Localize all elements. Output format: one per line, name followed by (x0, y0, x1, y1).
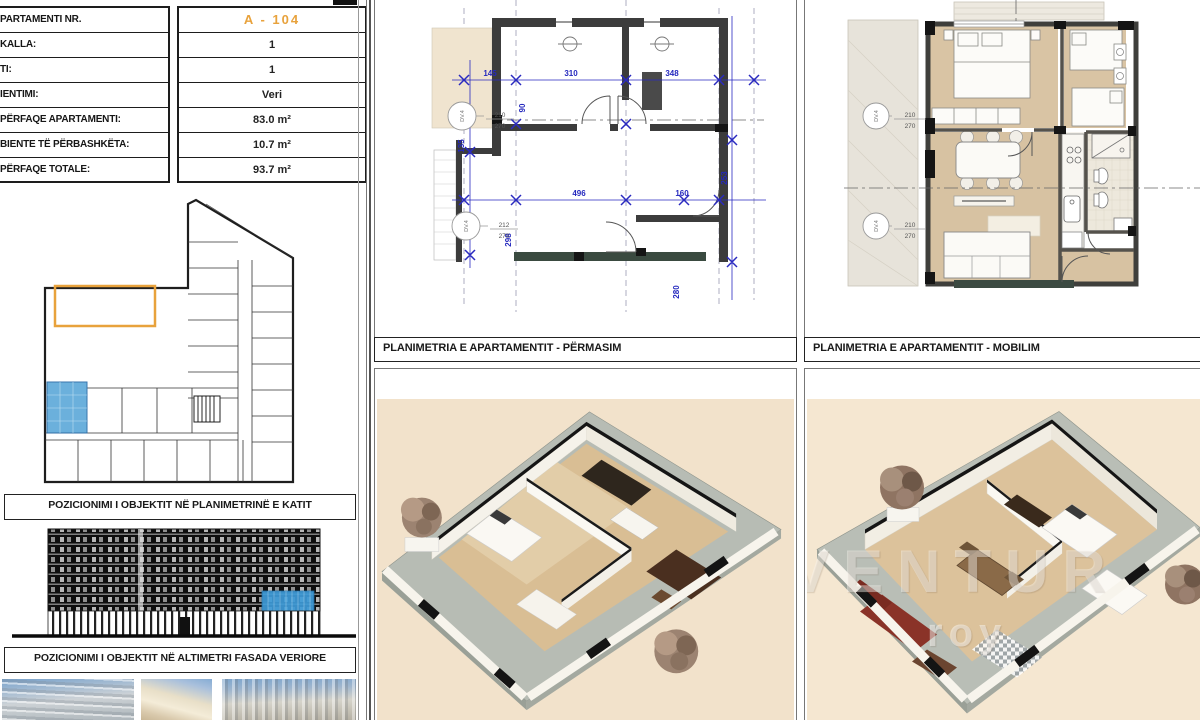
table-label: PARTAMENTI NR. (0, 8, 168, 33)
apartment-number: A - 104 (179, 8, 365, 33)
render-image-mid (377, 399, 794, 720)
building-photo-2 (141, 679, 212, 720)
door-tag-width: 212 (499, 222, 510, 229)
tree-2 (654, 629, 698, 673)
highlighted-unit-blue (47, 382, 87, 433)
dim-label: 310 (564, 69, 578, 78)
table-value: 10.7 m² (179, 133, 365, 158)
table-label: IENTIMI: (0, 83, 168, 108)
ceiling-symbols (558, 37, 674, 51)
door-tag-width: 210 (905, 222, 916, 229)
render-image-right: VENTUR roy (807, 399, 1200, 720)
dim-label: 160 (675, 189, 689, 198)
table-value: 1 (179, 33, 365, 58)
table-top-partial-cell (333, 0, 357, 5)
door-tag-width: 210 (905, 112, 916, 119)
plan-dimensions-title: PLANIMETRIA E APARTAMENTIT - PËRMASIM (375, 338, 796, 354)
dim-label: 253 (720, 171, 729, 185)
isometric-render-right (807, 399, 1200, 720)
tree-1 (401, 498, 442, 552)
frame-line (358, 0, 359, 720)
table-label: BIENTE TË PËRBASHKËTA: (0, 133, 168, 158)
key-plan-caption-text: POZICIONIMI I OBJEKTIT NË PLANIMETRINË E… (5, 495, 355, 511)
door-arcs (582, 96, 719, 252)
table-value: 93.7 m² (179, 158, 365, 183)
dim-label: 280 (672, 285, 681, 299)
dim-label: 135 (457, 139, 466, 153)
door-tag-height: 270 (905, 123, 916, 130)
info-table-values: A - 104 1 1 Veri 83.0 m² 10.7 m² 93.7 m² (177, 6, 367, 183)
isometric-render-mid (377, 399, 794, 720)
table-label: PËRFAQE APARTAMENTI: (0, 108, 168, 133)
stair-core (194, 396, 220, 422)
apartment-sheet: PARTAMENTI NR. KALLA: TI: IENTIMI: PËRFA… (0, 0, 1200, 720)
plan-dimensions-drawing: 145 310 348 496 160 90 135 298 253 280 D… (374, 0, 798, 336)
table-label: KALLA: (0, 33, 168, 58)
table-label: TI: (0, 58, 168, 83)
building-photo-1 (2, 679, 134, 720)
frame-line (366, 0, 367, 720)
plan-furnished-drawing: DV.4 210 270 DV.4 210 270 (804, 0, 1200, 336)
plan-furnished-header: PLANIMETRIA E APARTAMENTIT - MOBILIM (804, 337, 1200, 362)
door-tag-height: 270 (905, 233, 916, 240)
key-plan-caption: POZICIONIMI I OBJEKTIT NË PLANIMETRINË E… (4, 494, 356, 520)
facade-accent-strip (138, 529, 143, 611)
frame-line (369, 0, 371, 720)
table-label: PËRFAQE TOTALE: (0, 158, 168, 183)
elevation-caption-text: POZICIONIMI I OBJEKTIT NË ALTIMETRI FASA… (5, 648, 355, 664)
entrance (180, 617, 190, 635)
plan-furnished-title: PLANIMETRIA E APARTAMENTIT - MOBILIM (805, 338, 1200, 354)
door-tag-code: DV.4 (460, 110, 466, 122)
building-photo-3 (222, 679, 356, 720)
door-tag-2: DV.4 212 270 (452, 212, 518, 240)
table-value: Veri (179, 83, 365, 108)
key-plan-drawing (10, 190, 360, 490)
dim-label: 90 (518, 103, 527, 112)
dim-label: 145 (483, 69, 497, 78)
elevation-caption: POZICIONIMI I OBJEKTIT NË ALTIMETRI FASA… (4, 647, 356, 673)
door-tag-height: 270 (495, 123, 506, 130)
table-value: 83.0 m² (179, 108, 365, 133)
door-tag-code: DV.4 (464, 220, 470, 232)
elevation-drawing (10, 525, 360, 647)
door-tag-code: DV.4 (874, 220, 880, 232)
highlighted-unit-elevation (262, 591, 314, 611)
kitchen-fixtures (1062, 134, 1084, 248)
dining-set (956, 131, 1023, 190)
plan-dimensions-header: PLANIMETRIA E APARTAMENTIT - PËRMASIM (374, 337, 797, 362)
door-tag-code: DV.4 (874, 110, 880, 122)
info-table-labels: PARTAMENTI NR. KALLA: TI: IENTIMI: PËRFA… (0, 6, 170, 183)
dim-label: 496 (572, 189, 586, 198)
dim-label: 348 (665, 69, 679, 78)
door-tag-height: 270 (499, 233, 510, 240)
door-tag-width: 210 (495, 112, 506, 119)
walls (456, 18, 728, 262)
table-value: 1 (179, 58, 365, 83)
